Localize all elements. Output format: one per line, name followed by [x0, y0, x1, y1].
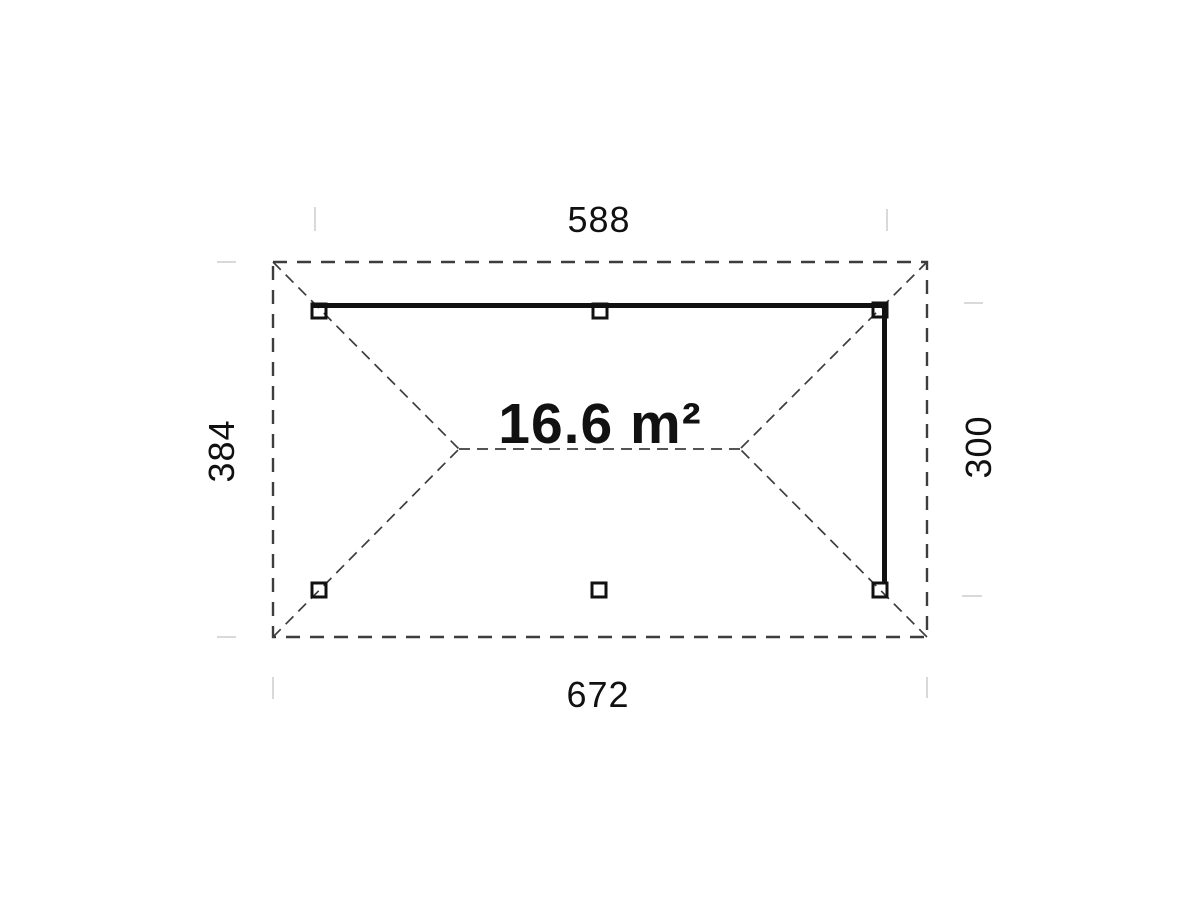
hip-line-top-right — [740, 262, 927, 449]
dim-label-top: 588 — [567, 199, 630, 240]
floor-plan-canvas: 588 672 384 300 16.6 m² — [0, 0, 1200, 900]
dim-label-right: 300 — [958, 415, 999, 478]
dim-label-left: 384 — [201, 419, 242, 482]
post-bottom-center — [592, 583, 606, 597]
dim-label-bottom: 672 — [566, 674, 629, 715]
floor-plan-drawing: 588 672 384 300 16.6 m² — [0, 0, 1200, 900]
hip-line-top-left — [273, 262, 459, 449]
hip-line-bottom-left — [273, 449, 459, 637]
hip-line-bottom-right — [740, 449, 927, 637]
area-label: 16.6 m² — [498, 392, 701, 456]
